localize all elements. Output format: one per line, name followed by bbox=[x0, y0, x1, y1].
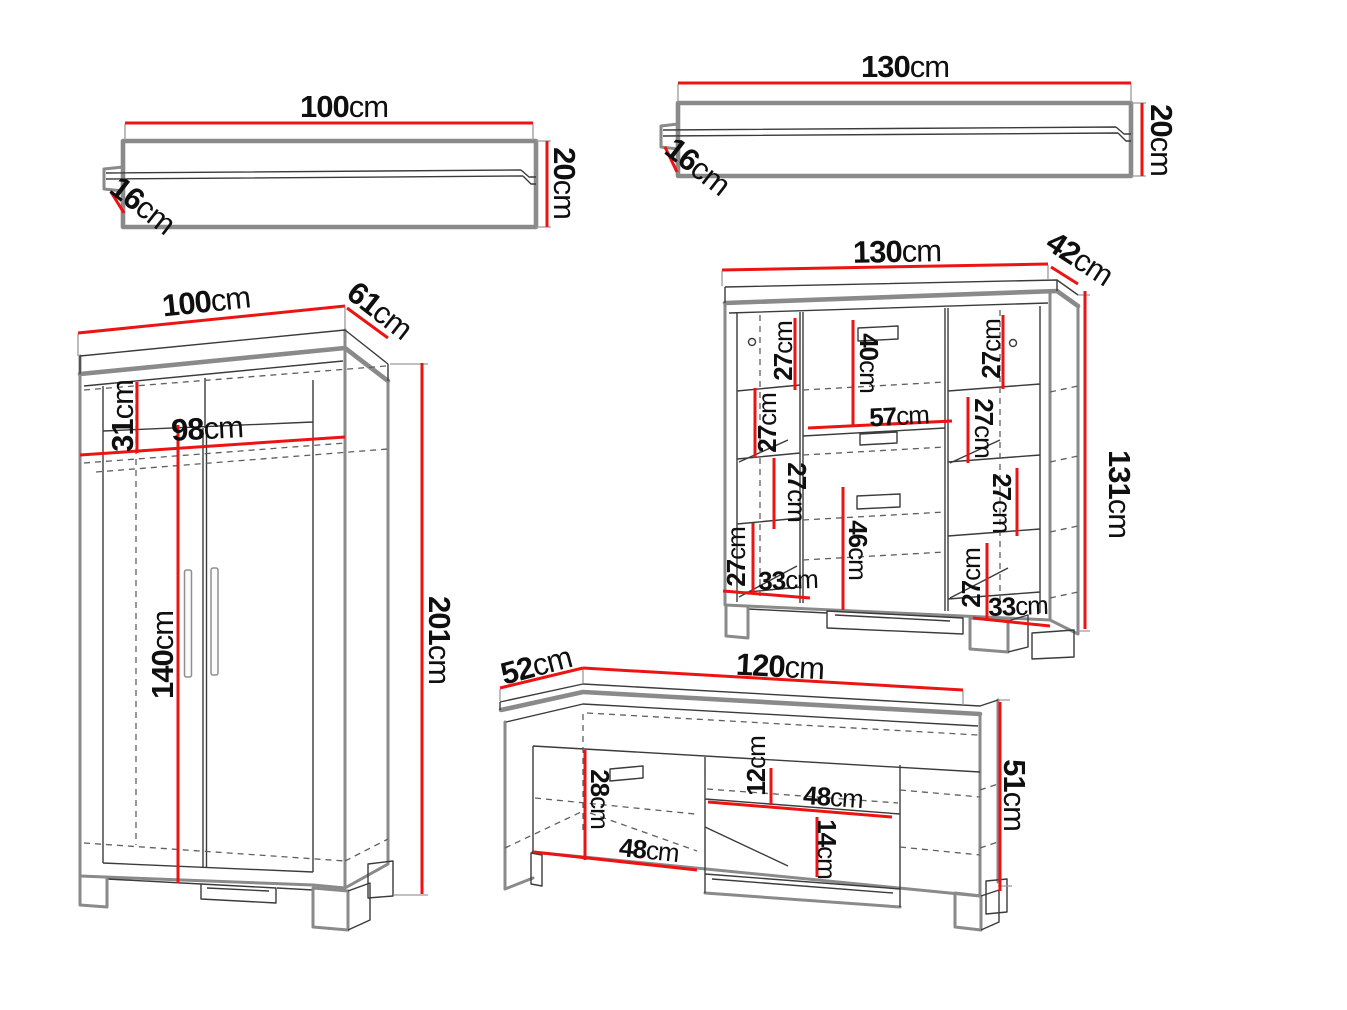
dim-unit: cm bbox=[784, 649, 825, 686]
dim-label-sideboard-left-shelf-3: 27cm bbox=[782, 462, 812, 522]
dim-label-tv-stand-width: 120cm bbox=[735, 646, 825, 686]
dim-unit: cm bbox=[645, 835, 681, 868]
dim-value: 201 bbox=[423, 596, 458, 645]
dim-value: 27 bbox=[969, 398, 999, 425]
dim-unit: cm bbox=[585, 796, 615, 829]
dim-value: 31 bbox=[105, 419, 140, 452]
dim-value: 27 bbox=[976, 351, 1006, 378]
dim-unit: cm bbox=[910, 49, 949, 84]
dim-label-sideboard-depth: 42cm bbox=[1040, 224, 1119, 292]
dim-unit: cm bbox=[1015, 590, 1049, 621]
dim-unit: cm bbox=[1103, 499, 1138, 538]
dim-label-sideboard-right-interior-width: 33cm bbox=[988, 590, 1049, 622]
dim-value: 130 bbox=[853, 233, 902, 269]
dim-unit: cm bbox=[1145, 137, 1180, 176]
wall-shelf-large-drawing bbox=[661, 84, 1146, 176]
furniture-dimensions-page: 100cm20cm16cm130cm20cm16cm100cm61cm31cm9… bbox=[0, 0, 1347, 1010]
dim-value: 27 bbox=[782, 462, 812, 489]
dim-value: 57 bbox=[868, 401, 897, 432]
dim-label-wardrobe-height: 201cm bbox=[423, 596, 458, 684]
tv-stand-legs bbox=[955, 893, 981, 930]
dim-label-tv-stand-left-door-height: 28cm bbox=[585, 769, 615, 829]
sideboard-right-door-knob bbox=[1010, 340, 1017, 347]
dim-unit: cm bbox=[768, 321, 798, 354]
dim-label-shelf-large-width: 130cm bbox=[861, 49, 949, 84]
dim-unit: cm bbox=[956, 548, 986, 581]
dim-value: 12 bbox=[741, 768, 771, 795]
furniture-dimensions-diagram: 100cm20cm16cm130cm20cm16cm100cm61cm31cm9… bbox=[0, 0, 1347, 1010]
dim-value: 27 bbox=[768, 353, 798, 380]
dim-unit: cm bbox=[209, 279, 252, 318]
dim-label-shelf-small-width: 100cm bbox=[300, 89, 388, 124]
sideboard-hidden-lines bbox=[760, 310, 1078, 600]
wardrobe-right-door-handle bbox=[211, 568, 218, 675]
dim-unit: cm bbox=[423, 645, 458, 684]
dim-value: 14 bbox=[812, 819, 842, 847]
dim-value: 140 bbox=[145, 650, 180, 699]
dim-value: 33 bbox=[758, 565, 786, 596]
dim-unit: cm bbox=[528, 639, 575, 683]
dim-label-tv-stand-shelf-width: 48cm bbox=[802, 780, 864, 814]
dim-label-sideboard-center-top-height: 40cm bbox=[854, 333, 884, 393]
dim-label-sideboard-width: 130cm bbox=[853, 233, 942, 270]
wardrobe-legs-side bbox=[348, 861, 393, 930]
dim-label-sideboard-right-shelf-2: 27cm bbox=[969, 398, 999, 458]
dim-label-sideboard-left-shelf-4: 27cm bbox=[721, 527, 751, 587]
dim-label-sideboard-left-interior-width: 33cm bbox=[758, 564, 819, 596]
shelf-large-body bbox=[678, 103, 1131, 176]
dim-label-tv-stand-shelf-bottom-gap: 14cm bbox=[812, 819, 842, 879]
dim-label-tv-stand-shelf-top-gap: 12cm bbox=[741, 736, 771, 796]
dim-value: 131 bbox=[1103, 450, 1138, 499]
dim-label-shelf-large-height: 20cm bbox=[1145, 104, 1180, 176]
dim-unit: cm bbox=[812, 846, 842, 879]
dim-value: 51 bbox=[998, 759, 1033, 792]
dim-value: 27 bbox=[752, 425, 782, 452]
dim-label-tv-stand-depth: 52cm bbox=[497, 639, 575, 691]
shelf-small-body bbox=[123, 141, 536, 227]
dim-unit: cm bbox=[895, 399, 929, 431]
dim-value: 20 bbox=[548, 147, 583, 179]
dim-value: 27 bbox=[956, 580, 986, 607]
dim-unit: cm bbox=[829, 782, 864, 814]
dim-label-wardrobe-interior-width: 98cm bbox=[170, 409, 244, 448]
dim-label-sideboard-center-bottom-height: 46cm bbox=[843, 520, 873, 580]
dim-value: 120 bbox=[735, 646, 785, 684]
shelf-small-molding bbox=[106, 170, 536, 184]
dim-value: 27 bbox=[987, 473, 1017, 500]
dim-value: 28 bbox=[585, 769, 615, 796]
dim-unit: cm bbox=[203, 409, 244, 446]
dim-label-sideboard-height: 131cm bbox=[1103, 450, 1138, 538]
dimension-line bbox=[708, 802, 892, 817]
tv-stand-top-edge bbox=[501, 692, 980, 714]
dim-label-wardrobe-depth: 61cm bbox=[341, 274, 419, 346]
shelf-large-molding bbox=[663, 127, 1131, 141]
dim-label-tv-stand-height: 51cm bbox=[998, 759, 1033, 831]
dim-unit: cm bbox=[145, 611, 180, 650]
dim-label-shelf-small-height: 20cm bbox=[548, 147, 583, 219]
dim-label-sideboard-right-shelf-1: 27cm bbox=[976, 319, 1006, 379]
wardrobe-left-door-handle bbox=[185, 570, 192, 677]
dim-value: 46 bbox=[843, 520, 873, 547]
dim-value: 48 bbox=[802, 780, 831, 812]
dim-value: 27 bbox=[721, 559, 751, 586]
wardrobe-cornice bbox=[80, 348, 388, 381]
dim-label-shelf-small-depth: 16cm bbox=[104, 169, 182, 241]
dim-label-sideboard-left-shelf-1: 27cm bbox=[768, 321, 798, 381]
dim-unit: cm bbox=[721, 527, 751, 560]
dim-label-wardrobe-door-height: 140cm bbox=[145, 611, 180, 699]
dim-unit: cm bbox=[105, 380, 140, 419]
dim-unit: cm bbox=[752, 393, 782, 426]
dim-unit: cm bbox=[998, 792, 1033, 831]
dim-value: 33 bbox=[988, 591, 1016, 622]
dim-value: 20 bbox=[1145, 104, 1180, 136]
dim-value: 100 bbox=[160, 283, 212, 323]
dim-label-sideboard-right-shelf-4: 27cm bbox=[956, 548, 986, 608]
tv-stand-outer-edges bbox=[505, 700, 998, 907]
dim-label-tv-stand-left-interior-width: 48cm bbox=[618, 832, 680, 868]
dim-unit: cm bbox=[854, 360, 884, 393]
sideboard-left-door-knob bbox=[749, 339, 756, 346]
dim-label-sideboard-center-width: 57cm bbox=[868, 399, 929, 432]
dim-unit: cm bbox=[901, 233, 941, 269]
dim-unit: cm bbox=[548, 180, 583, 219]
dim-unit: cm bbox=[741, 736, 771, 769]
dim-label-sideboard-left-shelf-2: 27cm bbox=[752, 393, 782, 453]
dim-value: 130 bbox=[861, 49, 910, 84]
dim-label-shelf-large-depth: 16cm bbox=[659, 130, 737, 202]
dim-unit: cm bbox=[843, 547, 873, 580]
dim-value: 48 bbox=[618, 832, 648, 865]
dim-unit: cm bbox=[976, 319, 1006, 352]
dim-label-wardrobe-top-compartment-height: 31cm bbox=[105, 380, 140, 452]
dim-unit: cm bbox=[349, 89, 388, 124]
dim-value: 40 bbox=[854, 333, 884, 360]
dim-value: 98 bbox=[170, 411, 205, 448]
dim-unit: cm bbox=[969, 425, 999, 458]
dim-unit: cm bbox=[987, 500, 1017, 533]
dim-label-sideboard-right-shelf-3: 27cm bbox=[987, 473, 1017, 533]
dim-unit: cm bbox=[782, 489, 812, 522]
dim-unit: cm bbox=[785, 564, 819, 595]
tv-stand-drawing bbox=[500, 669, 1012, 930]
dim-value: 100 bbox=[300, 89, 349, 124]
dimension-labels: 100cm20cm16cm130cm20cm16cm100cm61cm31cm9… bbox=[104, 49, 1180, 879]
